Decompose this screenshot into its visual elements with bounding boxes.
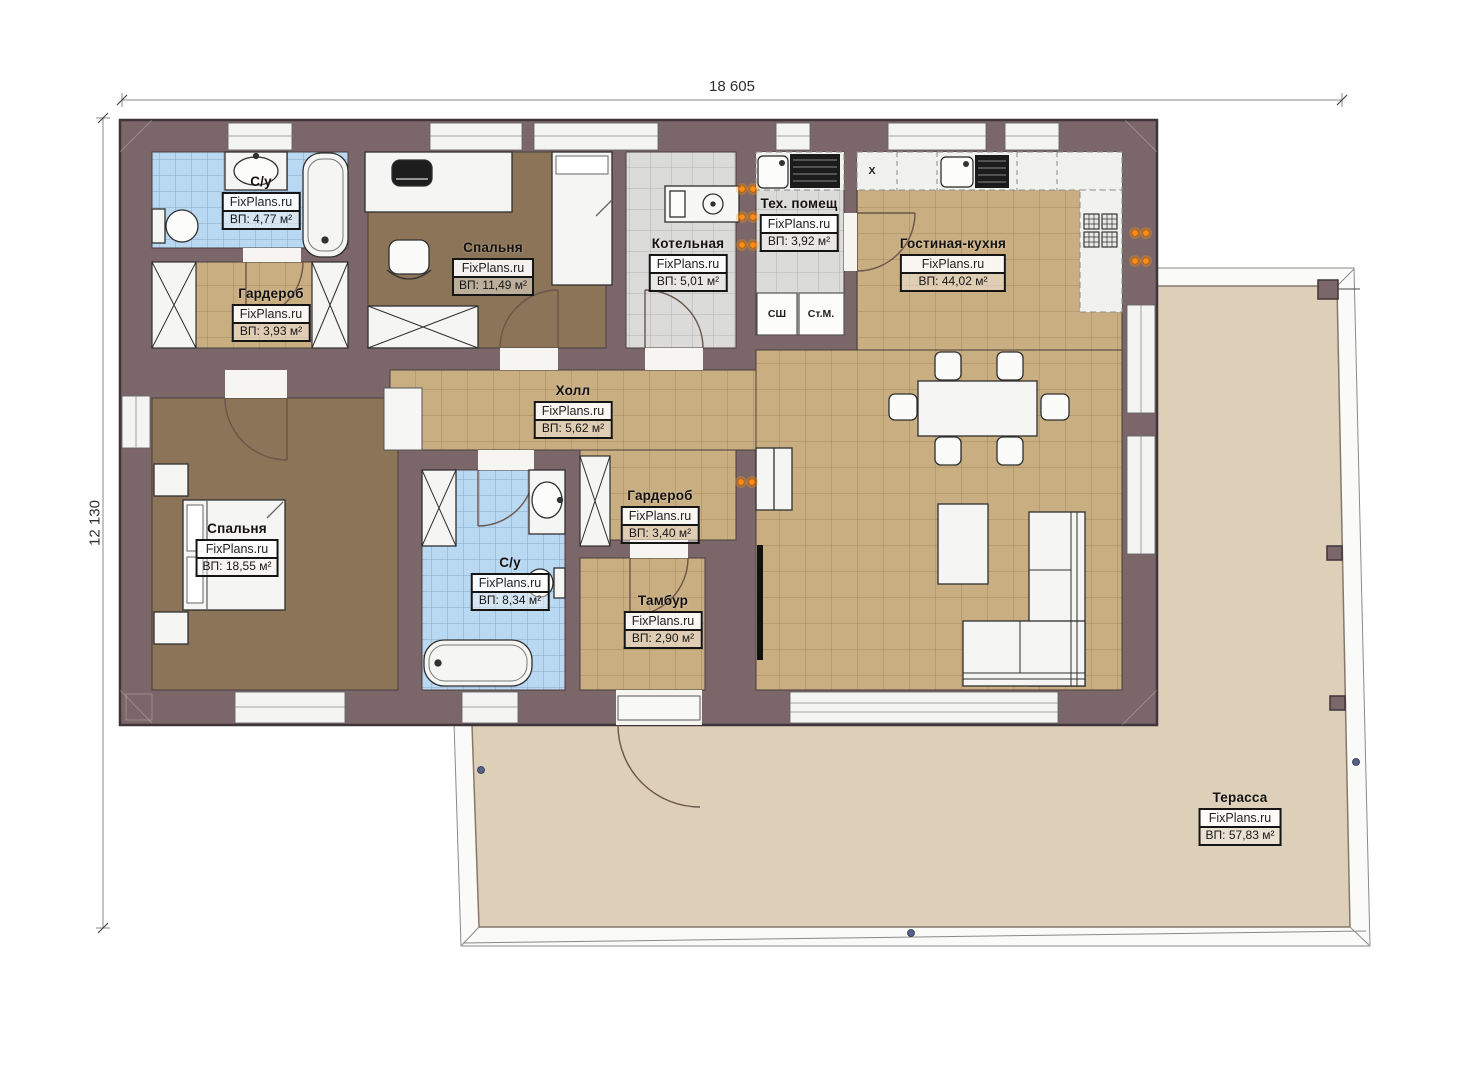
- room-name: Тамбур: [624, 593, 703, 609]
- pocket-door-panel: [384, 388, 422, 450]
- room-name: Спальня: [452, 240, 534, 256]
- room-area: ВП: 3,40 м²: [621, 526, 700, 544]
- room-name: С/у: [222, 174, 301, 190]
- room-name: Гардероб: [232, 286, 311, 302]
- sliding-door: [790, 692, 1058, 723]
- boiler-room-fixtures: [665, 186, 739, 222]
- coffee-table: [938, 504, 988, 584]
- room-area: ВП: 3,93 м²: [232, 324, 311, 342]
- room-name: Холл: [534, 383, 613, 399]
- brand-watermark: FixPlans.ru: [232, 304, 311, 324]
- room-label-bedroom-top: Спальня FixPlans.ru ВП: 11,49 м²: [452, 240, 534, 296]
- room-label-tech: Тех. помещ FixPlans.ru ВП: 3,92 м²: [760, 196, 839, 252]
- room-label-terrace: Терасса FixPlans.ru ВП: 57,83 м²: [1199, 790, 1282, 846]
- room-area: ВП: 44,02 м²: [900, 274, 1006, 292]
- dining-chair: [935, 352, 961, 380]
- kitchen-hood-label: X: [868, 165, 875, 177]
- room-label-living-kitchen: Гостиная-кухня FixPlans.ru ВП: 44,02 м²: [900, 236, 1006, 292]
- dining-chair: [1041, 394, 1069, 420]
- toilet-tank: [554, 568, 565, 598]
- room-name: Спальня: [196, 521, 279, 537]
- room-area: ВП: 57,83 м²: [1199, 828, 1282, 846]
- room-name: С/у: [471, 555, 550, 571]
- dimension-height-label: 12 130: [87, 500, 104, 546]
- dining-chair: [935, 437, 961, 465]
- room-label-wardrobe-bottom: Гардероб FixPlans.ru ВП: 3,40 м²: [621, 488, 700, 544]
- room-label-hall: Холл FixPlans.ru ВП: 5,62 м²: [534, 383, 613, 439]
- room-label-bathroom-bottom: С/у FixPlans.ru ВП: 8,34 м²: [471, 555, 550, 611]
- tv-panel: [757, 545, 763, 660]
- washing-machine-label: Ст.М.: [808, 308, 834, 320]
- room-label-bathroom-top: С/у FixPlans.ru ВП: 4,77 м²: [222, 174, 301, 230]
- brand-watermark: FixPlans.ru: [649, 254, 728, 274]
- tub-drain: [435, 660, 441, 666]
- room-name: Гостиная-кухня: [900, 236, 1006, 252]
- room-label-bedroom-bottom: Спальня FixPlans.ru ВП: 18,55 м²: [196, 521, 279, 577]
- entrance-door-leaf: [618, 696, 700, 720]
- faucet: [254, 154, 259, 159]
- dining-chair: [889, 394, 917, 420]
- brand-watermark: FixPlans.ru: [452, 258, 534, 278]
- toilet-bowl: [166, 210, 198, 242]
- drying-cabinet-label: СШ: [768, 308, 786, 320]
- kitchen-sink: [941, 157, 973, 187]
- tub-drain: [322, 237, 328, 243]
- dimension-width-label: 18 605: [709, 78, 755, 95]
- toilet-tank: [152, 209, 165, 243]
- room-name: Тех. помещ: [760, 196, 839, 212]
- room-area: ВП: 18,55 м²: [196, 559, 279, 577]
- room-area: ВП: 8,34 м²: [471, 593, 550, 611]
- brand-watermark: FixPlans.ru: [760, 214, 839, 234]
- desk-chair: [389, 240, 429, 274]
- nightstand: [154, 612, 188, 644]
- pillow: [556, 156, 608, 174]
- brand-watermark: FixPlans.ru: [196, 539, 279, 559]
- room-name: Котельная: [649, 236, 728, 252]
- kitchen-counter-right: [1080, 190, 1122, 312]
- brand-watermark: FixPlans.ru: [621, 506, 700, 526]
- brand-watermark: FixPlans.ru: [471, 573, 550, 593]
- floor-plan-page: 18 605 12 130 С/у FixPlans.ru ВП: 4,77 м…: [0, 0, 1473, 1080]
- brand-watermark: FixPlans.ru: [534, 401, 613, 421]
- wardrobe-bottom-closet: [580, 456, 610, 546]
- dining-chair: [997, 437, 1023, 465]
- tech-appliance: [790, 154, 840, 188]
- brand-watermark: FixPlans.ru: [624, 611, 703, 631]
- brand-watermark: FixPlans.ru: [1199, 808, 1282, 828]
- room-area: ВП: 2,90 м²: [624, 631, 703, 649]
- room-area: ВП: 4,77 м²: [222, 212, 301, 230]
- room-label-vestibule: Тамбур FixPlans.ru ВП: 2,90 м²: [624, 593, 703, 649]
- sofa-section-horizontal: [963, 621, 1085, 686]
- room-label-boiler: Котельная FixPlans.ru ВП: 5,01 м²: [649, 236, 728, 292]
- dining-chair: [997, 352, 1023, 380]
- room-area: ВП: 3,92 м²: [760, 234, 839, 252]
- room-area: ВП: 5,01 м²: [649, 274, 728, 292]
- room-area: ВП: 11,49 м²: [452, 278, 534, 296]
- room-name: Гардероб: [621, 488, 700, 504]
- room-name: Терасса: [1199, 790, 1282, 806]
- brand-watermark: FixPlans.ru: [222, 192, 301, 212]
- dining-table: [918, 381, 1037, 436]
- brand-watermark: FixPlans.ru: [900, 254, 1006, 274]
- nightstand: [154, 464, 188, 496]
- room-label-wardrobe-top: Гардероб FixPlans.ru ВП: 3,93 м²: [232, 286, 311, 342]
- kitchen-appliance: [975, 155, 1009, 188]
- room-area: ВП: 5,62 м²: [534, 421, 613, 439]
- printer: [392, 160, 432, 186]
- desk: [365, 152, 512, 212]
